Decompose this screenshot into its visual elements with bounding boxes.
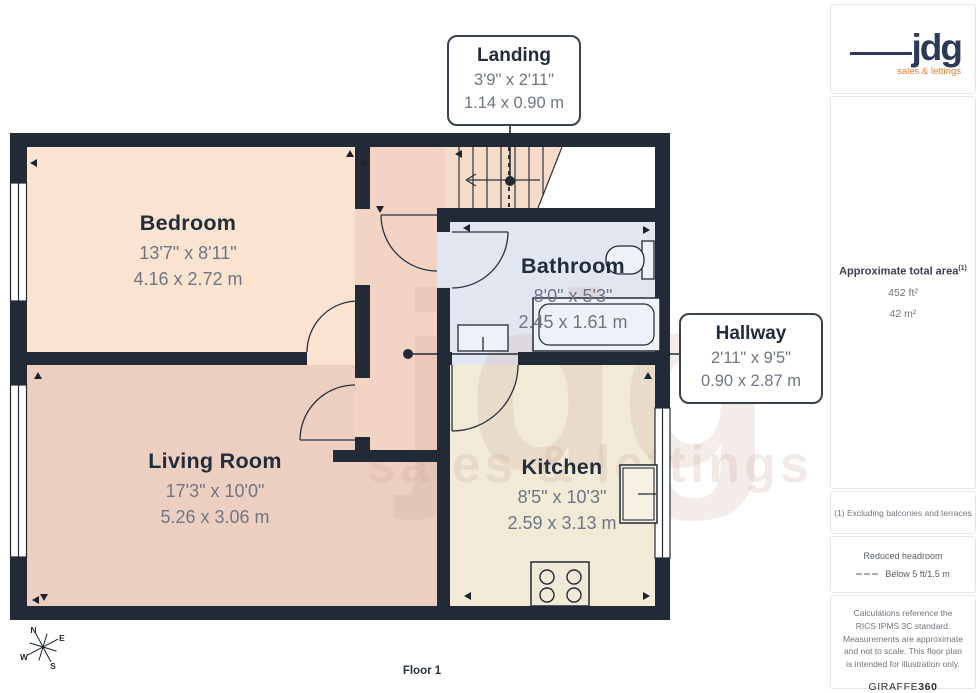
living-room-label: Living Room 17'3" x 10'0" 5.26 x 3.06 m	[148, 449, 282, 530]
callout-dims-metric: 1.14 x 0.90 m	[455, 92, 573, 115]
info-sidebar: jdg sales & lettings Approximate total a…	[828, 0, 980, 693]
logo-underline	[850, 52, 912, 55]
floorplan-page: jdg sales & lettings	[0, 0, 980, 693]
callout-dims-metric: 0.90 x 2.87 m	[687, 370, 815, 393]
hallway-anchor-dot	[403, 349, 413, 359]
room-name: Bedroom	[133, 211, 242, 236]
floor-label: Floor 1	[372, 665, 472, 677]
room-dims-metric: 5.26 x 3.06 m	[148, 504, 282, 530]
logo-tagline: sales & lettings	[897, 66, 961, 77]
compass-north-label: N	[30, 625, 36, 635]
sink-icon	[458, 325, 508, 351]
agency-logo: jdg sales & lettings	[830, 4, 976, 94]
callout-name: Landing	[455, 45, 573, 67]
callout-dims-imperial: 3'9" x 2'11"	[455, 69, 573, 92]
compass-east-label: E	[59, 633, 65, 643]
area-title-superscript: (1)	[958, 265, 967, 272]
hallway-callout: Hallway 2'11" x 9'5" 0.90 x 2.87 m	[679, 313, 823, 404]
kitchen-label: Kitchen 8'5" x 10'3" 2.59 x 3.13 m	[507, 455, 616, 536]
headroom-legend: Below 5 ft/1.5 m	[885, 569, 950, 579]
area-footnote: (1) Excluding balconies and terraces	[830, 491, 976, 534]
area-imperial: 452 ft²	[888, 287, 918, 299]
bedroom-label: Bedroom 13'7" x 8'11" 4.16 x 2.72 m	[133, 211, 242, 292]
reduced-headroom-panel: Reduced headroom Below 5 ft/1.5 m	[830, 536, 976, 593]
compass-icon: N E W S	[20, 624, 66, 671]
room-name: Bathroom	[518, 254, 627, 279]
area-metric: 42 m²	[890, 308, 917, 320]
living-room-window	[11, 385, 27, 557]
headroom-title: Reduced headroom	[863, 551, 942, 561]
room-dims-imperial: 13'7" x 8'11"	[133, 240, 242, 266]
room-dims-metric: 2.59 x 3.13 m	[507, 510, 616, 536]
total-area-panel: Approximate total area(1) 452 ft² 42 m²	[830, 96, 976, 489]
room-name: Living Room	[148, 449, 282, 474]
room-dims-imperial: 17'3" x 10'0"	[148, 478, 282, 504]
area-title: Approximate total area	[839, 266, 958, 278]
logo-text: jdg	[912, 35, 961, 62]
brand-suffix: 360	[918, 681, 937, 693]
room-dims-metric: 2.45 x 1.61 m	[518, 309, 627, 335]
room-dims-imperial: 8'0" x 5'3"	[518, 283, 627, 309]
dashed-line-icon	[856, 573, 878, 575]
callout-name: Hallway	[687, 323, 815, 345]
bathroom-label: Bathroom 8'0" x 5'3" 2.45 x 1.61 m	[518, 254, 627, 335]
callout-dims-imperial: 2'11" x 9'5"	[687, 347, 815, 370]
room-name: Kitchen	[507, 455, 616, 480]
landing-anchor-dot	[505, 176, 515, 186]
fridge-icon	[620, 465, 657, 523]
disclaimer-text: Calculations reference the RICS IPMS 3C …	[843, 607, 963, 671]
disclaimer-panel: Calculations reference the RICS IPMS 3C …	[830, 595, 976, 689]
compass-west-label: W	[20, 652, 29, 662]
compass-south-label: S	[50, 661, 56, 671]
landing-callout: Landing 3'9" x 2'11" 1.14 x 0.90 m	[447, 35, 581, 126]
bedroom-window	[11, 183, 27, 301]
room-dims-imperial: 8'5" x 10'3"	[507, 484, 616, 510]
room-dims-metric: 4.16 x 2.72 m	[133, 266, 242, 292]
brand-name: GIRAFFE	[868, 681, 918, 693]
